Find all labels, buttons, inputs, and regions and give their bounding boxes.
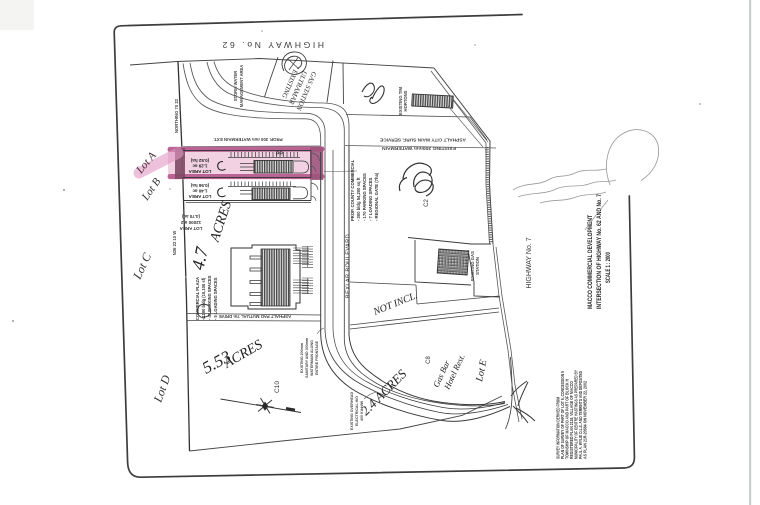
svg-text:STATION: STATION xyxy=(475,257,480,275)
svg-text:LOT AREA: LOT AREA xyxy=(179,226,203,231)
svg-text:STORM WATER: STORM WATER xyxy=(233,71,238,101)
svg-text:C8: C8 xyxy=(426,356,432,364)
svg-text:(0.52 ha): (0.52 ha) xyxy=(190,158,209,163)
svg-text:SCALE 1 : 2000: SCALE 1 : 2000 xyxy=(605,252,612,283)
svg-text:SANITARY AND 300mm: SANITARY AND 300mm xyxy=(305,338,309,378)
svg-text:1.40 ac: 1.40 ac xyxy=(192,189,208,194)
svg-text:AS PLAN 21R-20584 ON NOVEMBER: AS PLAN 21R-20584 ON NOVEMBER 22, 2002 xyxy=(583,380,588,459)
svg-text:LOT AREA: LOT AREA xyxy=(188,194,212,199)
svg-text:- 7 LOADING SPACES: - 7 LOADING SPACES xyxy=(368,177,373,221)
svg-text:HORTONS: HORTONS xyxy=(403,90,408,111)
svg-text:BEXLAR BOULEVARD: BEXLAR BOULEVARD xyxy=(346,234,352,298)
svg-text:HIGHWAY No. 62: HIGHWAY No. 62 xyxy=(220,40,324,50)
svg-text:PROP. 300 mm WATERMAIN EXT.: PROP. 300 mm WATERMAIN EXT. xyxy=(213,137,282,142)
svg-text:- 300 bldg 54,200 sq ft: - 300 bldg 54,200 sq ft xyxy=(356,177,361,221)
svg-text:ENTIRE FRONTAGE: ENTIRE FRONTAGE xyxy=(315,340,319,375)
svg-text:HIGHWAY No. 7: HIGHWAY No. 7 xyxy=(526,237,533,288)
svg-text:ASPHALT CITY MAIN SURF. SERVIC: ASPHALT CITY MAIN SURF. SERVICE xyxy=(380,138,466,143)
svg-text:C2: C2 xyxy=(424,199,430,207)
svg-text:(0.56 ha): (0.56 ha) xyxy=(190,183,209,188)
svg-text:PROP. COUNTY COMMERCIAL: PROP. COUNTY COMMERCIAL xyxy=(350,159,355,221)
svg-text:- REGIONAL GATE (7ha): - REGIONAL GATE (7ha) xyxy=(374,172,379,221)
svg-text:ELECTRICAL H/O: ELECTRICAL H/O xyxy=(355,396,359,426)
svg-text:MANAGEMENT AREA: MANAGEMENT AREA xyxy=(239,65,244,107)
svg-text:EXISTING 300mm WATERMAIN: EXISTING 300mm WATERMAIN xyxy=(382,146,456,151)
svg-text:LOT AREA: LOT AREA xyxy=(188,169,212,174)
svg-text:1.29 ac: 1.29 ac xyxy=(192,164,208,169)
svg-text:ASPHALT PAD MUTUAL 7m DRIVE: ASPHALT PAD MUTUAL 7m DRIVE xyxy=(219,314,292,319)
svg-text:N36 22 10 W: N36 22 10 W xyxy=(172,231,177,255)
svg-text:- 47 PARKING SPACES: - 47 PARKING SPACES xyxy=(207,275,212,320)
svg-text:(4.70 ac): (4.70 ac) xyxy=(181,214,200,219)
svg-text:EXISTING OVERHEAD: EXISTING OVERHEAD xyxy=(350,392,354,431)
svg-text:EXISTING 200mm: EXISTING 200mm xyxy=(300,343,304,373)
svg-text:WATERMAIN ALONG: WATERMAIN ALONG xyxy=(310,340,314,376)
svg-text:12000 m2: 12000 m2 xyxy=(180,220,201,225)
svg-text:PP.: PP. xyxy=(276,152,284,158)
svg-text:C10: C10 xyxy=(274,381,281,393)
svg-text:NORTHING 70 22: NORTHING 70 22 xyxy=(174,98,179,133)
svg-text:MACCO COMMERCIAL DEVELOPMENT: MACCO COMMERCIAL DEVELOPMENT xyxy=(587,215,594,309)
svg-text:- 170 PARKING SPACES: - 170 PARKING SPACES xyxy=(362,173,367,221)
